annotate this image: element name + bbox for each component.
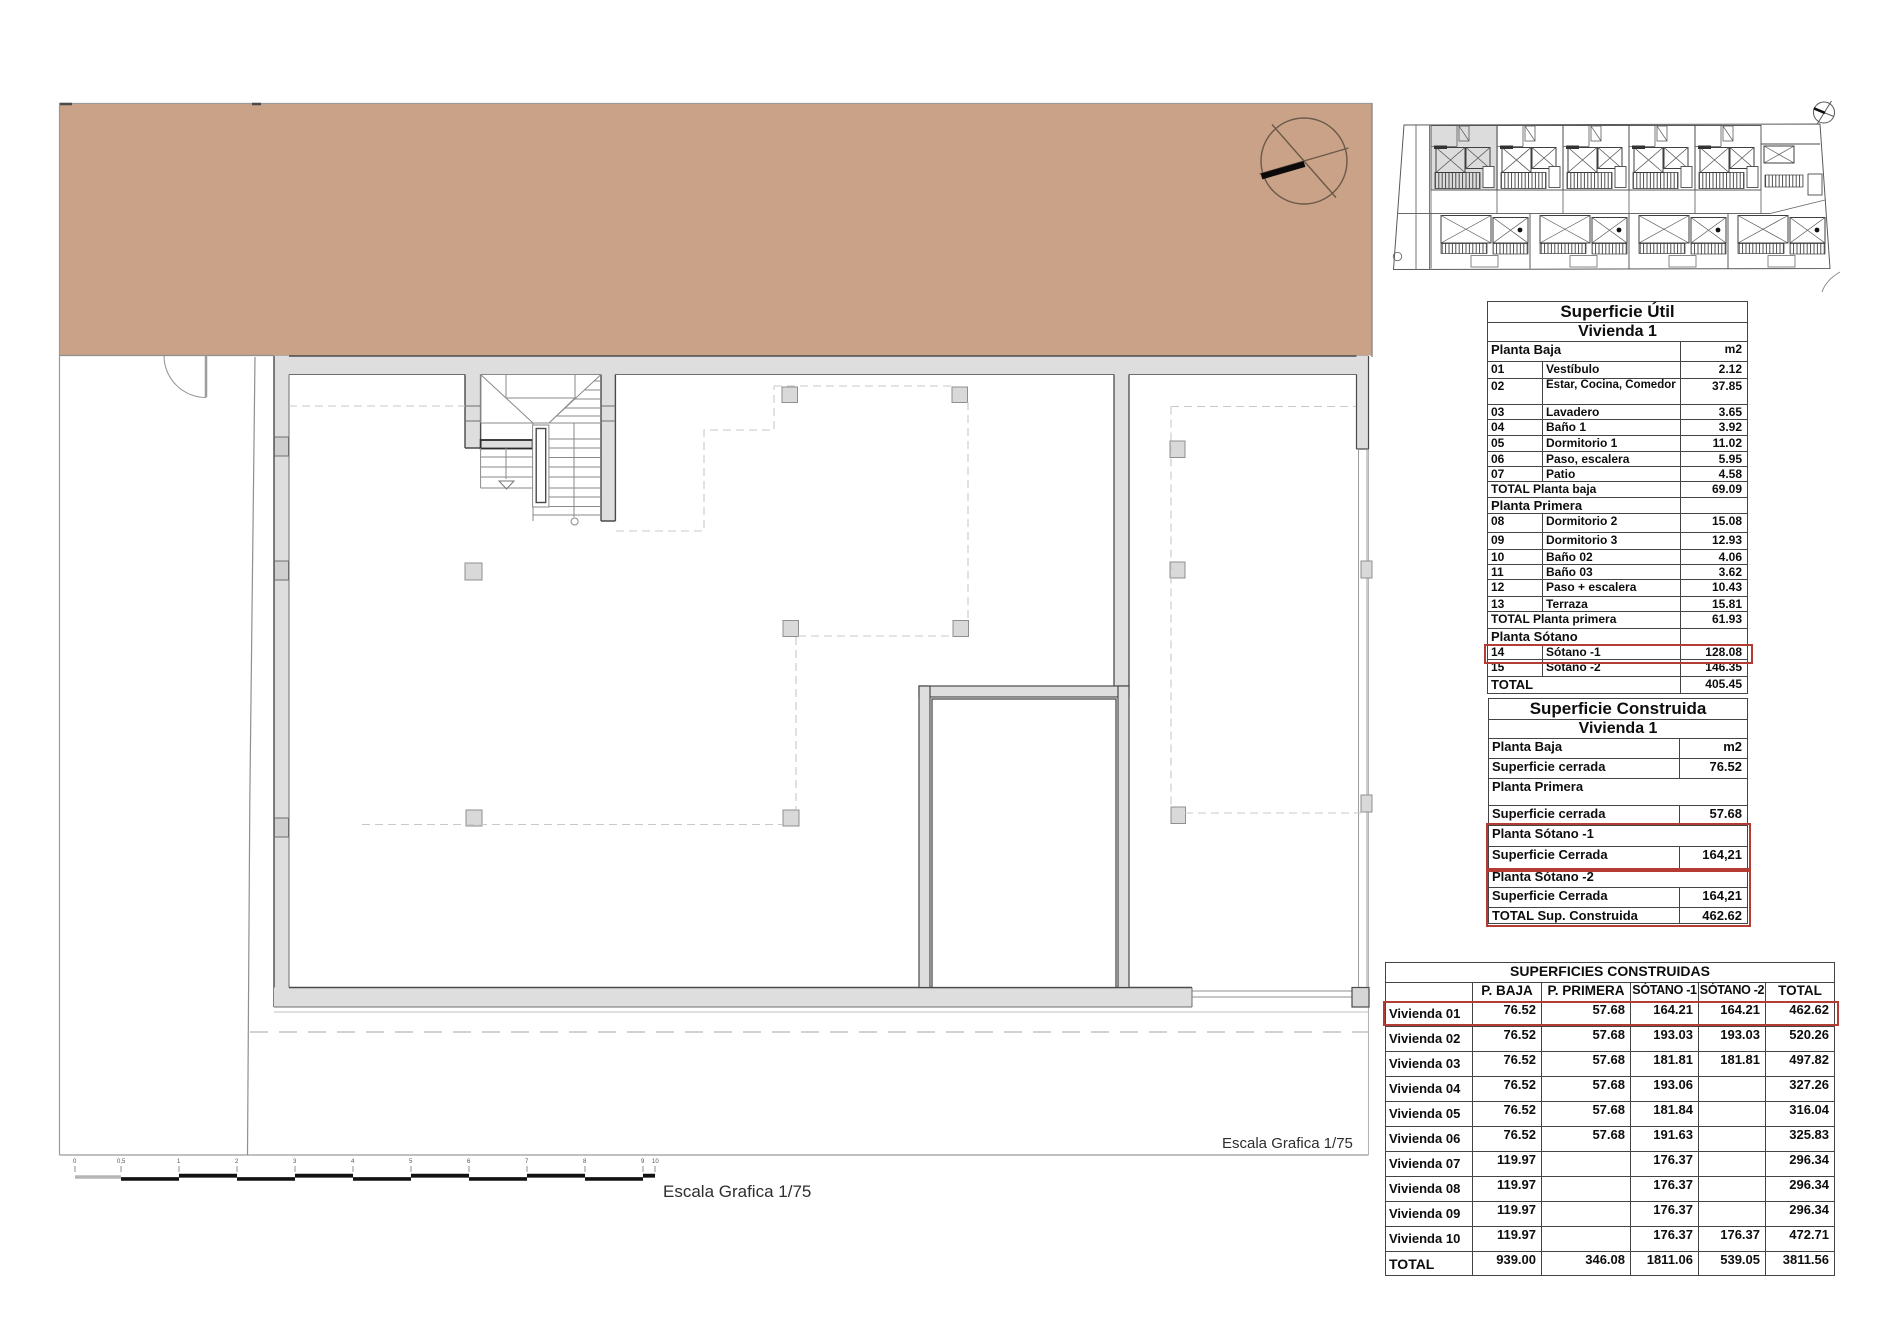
svg-text:7: 7 [525, 1159, 529, 1165]
svg-text:4: 4 [351, 1159, 355, 1165]
svg-text:9: 9 [641, 1159, 645, 1165]
svg-text:3: 3 [293, 1159, 297, 1165]
svg-text:0,5: 0,5 [117, 1159, 126, 1165]
svg-text:0: 0 [73, 1159, 77, 1165]
svg-text:5: 5 [409, 1159, 413, 1165]
svg-text:2: 2 [235, 1159, 239, 1165]
svg-text:6: 6 [467, 1159, 471, 1165]
svg-text:8: 8 [583, 1159, 587, 1165]
svg-text:1: 1 [177, 1159, 181, 1165]
svg-text:10: 10 [652, 1159, 659, 1165]
